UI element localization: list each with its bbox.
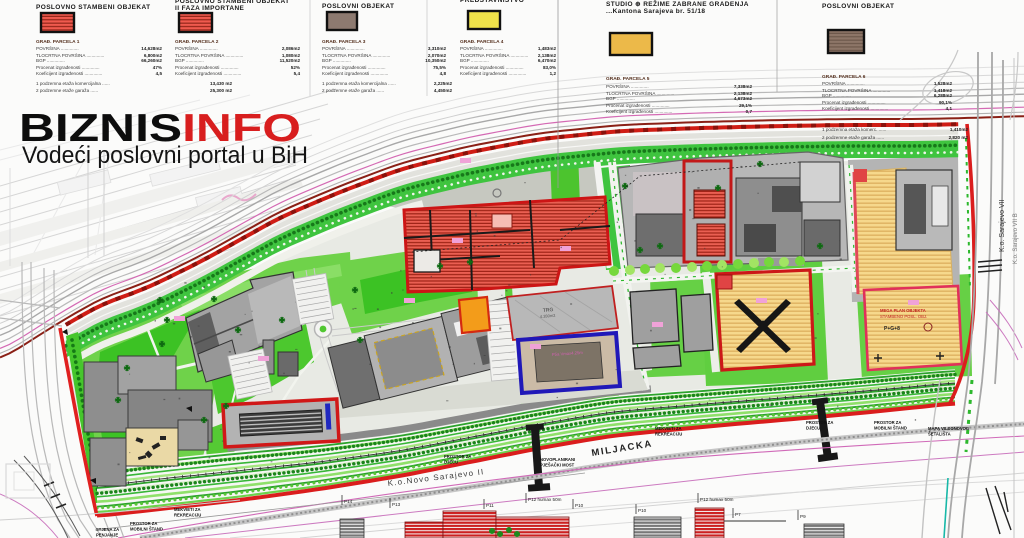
svg-text:GRAĐ. PARCELA 6: GRAĐ. PARCELA 6: [822, 74, 866, 80]
svg-text:P9: P9: [800, 514, 806, 519]
svg-text:Koeficijent izgrađenosti .....: Koeficijent izgrađenosti ..............: [822, 106, 888, 111]
svg-text:4,673m2: 4,673m2: [734, 96, 753, 101]
svg-text:POVRŠINA ..............: POVRŠINA ..............: [36, 45, 79, 51]
svg-text:P12 humax 50m: P12 humax 50m: [700, 497, 734, 502]
svg-text:Procenat izgrađenosti ........: Procenat izgrađenosti ..............: [460, 65, 524, 70]
svg-text:2 podzemne etaže garaža ......: 2 podzemne etaže garaža ......: [822, 135, 884, 140]
svg-text:2,086m2: 2,086m2: [282, 46, 301, 51]
svg-text:4,8: 4,8: [440, 71, 447, 76]
svg-text:25,300 m2: 25,300 m2: [210, 88, 232, 93]
svg-text:Koeficijent izgrađenosti .....: Koeficijent izgrađenosti ..............: [322, 71, 388, 76]
svg-text:POVRŠINA ..............: POVRŠINA ..............: [822, 80, 865, 86]
svg-text:Procenat izgrađenosti ........: Procenat izgrađenosti ..............: [606, 103, 670, 108]
svg-text:1,2: 1,2: [550, 71, 557, 76]
svg-text:ŠETALIŠTA: ŠETALIŠTA: [928, 431, 951, 436]
svg-text:PJEŠAČKI MOST: PJEŠAČKI MOST: [540, 462, 575, 467]
svg-text:II FAZA IMPORTANE: II FAZA IMPORTANE: [175, 5, 245, 12]
svg-text:3,310m2: 3,310m2: [428, 46, 447, 51]
svg-text:2,820 m2: 2,820 m2: [949, 135, 969, 140]
svg-text:POSLOVNI OBJEKAT: POSLOVNI OBJEKAT: [322, 3, 394, 10]
svg-text:52%: 52%: [291, 65, 300, 70]
svg-text:BGP ..............: BGP ..............: [822, 93, 851, 98]
svg-text:13,430 m2: 13,430 m2: [210, 81, 232, 86]
svg-text:29,1%: 29,1%: [739, 103, 752, 108]
svg-text:75,5%: 75,5%: [433, 65, 446, 70]
svg-text:MOBILNI ŠTAND: MOBILNI ŠTAND: [130, 526, 163, 531]
svg-text:Procenat izgrađenosti ........: Procenat izgrađenosti ..............: [322, 65, 386, 70]
svg-text:Koeficijent izgrađenosti .....: Koeficijent izgrađenosti ..............: [460, 71, 526, 76]
svg-text:REKREACIJU: REKREACIJU: [174, 512, 201, 517]
svg-text:0,7: 0,7: [746, 109, 753, 114]
svg-text:1,410m2: 1,410m2: [950, 127, 969, 132]
svg-text:P7: P7: [735, 512, 741, 517]
svg-text:Procenat izgrađenosti ........: Procenat izgrađenosti ..............: [36, 65, 100, 70]
svg-text:...Kantona Sarajeva br. 51/18: ...Kantona Sarajeva br. 51/18: [606, 8, 705, 15]
svg-text:GRAĐ. PARCELA 1: GRAĐ. PARCELA 1: [36, 39, 80, 45]
svg-text:Vodeći poslovni portal u BiH: Vodeći poslovni portal u BiH: [22, 142, 308, 169]
svg-text:Koeficijent izgrađenosti .....: Koeficijent izgrađenosti ..............: [36, 71, 102, 76]
svg-text:Koeficijent izgrađenosti .....: Koeficijent izgrađenosti ..............: [606, 109, 672, 114]
svg-text:10,350m2: 10,350m2: [425, 58, 446, 63]
svg-text:1,483m2: 1,483m2: [538, 46, 557, 51]
svg-text:Procenat izgrađenosti ........: Procenat izgrađenosti ..............: [175, 65, 239, 70]
svg-text:14,628m2: 14,628m2: [141, 46, 162, 51]
svg-text:GRAĐ. PARCELA 4: GRAĐ. PARCELA 4: [460, 39, 504, 45]
svg-text:47%: 47%: [153, 65, 162, 70]
svg-text:4,1: 4,1: [946, 106, 953, 111]
svg-text:STUDIO ⊕ REŽIME ZABRANE GRAD: STUDIO ⊕ REŽIME ZABRANE GRADENJA: [606, 0, 749, 8]
svg-text:NOVOPLANIRANI: NOVOPLANIRANI: [540, 457, 575, 462]
svg-text:P10: P10: [575, 503, 584, 508]
svg-text:Koeficijent izgrađenosti .....: Koeficijent izgrađenosti ..............: [175, 71, 241, 76]
svg-text:P12 humax 50m: P12 humax 50m: [528, 497, 562, 502]
svg-text:PENJANJE: PENJANJE: [96, 532, 118, 537]
svg-text:66,260m2: 66,260m2: [141, 58, 162, 63]
svg-text:REKREACIJU: REKREACIJU: [655, 431, 682, 436]
svg-text:Procenat izgrađenosti ........: Procenat izgrađenosti ..............: [822, 100, 886, 105]
svg-text:2 podzemne etaže garaža ......: 2 podzemne etaže garaža ......: [322, 88, 384, 93]
svg-text:DJECU: DJECU: [444, 459, 458, 464]
svg-text:BGP ..............: BGP ..............: [606, 96, 635, 101]
svg-text:11,520m2: 11,520m2: [280, 58, 301, 63]
svg-text:P14: P14: [344, 499, 353, 504]
svg-text:1 podzemna etaža komercijalna: 1 podzemna etaža komercijalna ......: [36, 81, 110, 86]
svg-text:K.o. Sarajevo VII B: K.o. Sarajevo VII B: [1013, 213, 1019, 264]
svg-text:K.o. Sarajevo VII: K.o. Sarajevo VII: [999, 199, 1006, 252]
svg-text:P13: P13: [392, 502, 401, 507]
svg-text:5,4: 5,4: [294, 71, 301, 76]
svg-text:STAMBENO POSL. OBJ.: STAMBENO POSL. OBJ.: [880, 314, 927, 319]
svg-text:PROSTOR ZA: PROSTOR ZA: [130, 521, 157, 526]
svg-text:1 podzemna etaža komerc. .....: 1 podzemna etaža komerc. ......: [822, 127, 886, 132]
svg-text:MAPA VILSONOVOG: MAPA VILSONOVOG: [928, 426, 969, 431]
svg-text:PREDSTAVNIŠTVO: PREDSTAVNIŠTVO: [460, 0, 524, 4]
svg-text:PROSTOR ZA: PROSTOR ZA: [874, 420, 901, 425]
svg-text:6,288m2: 6,288m2: [934, 93, 953, 98]
svg-text:1 podzemna etaža komercijalna: 1 podzemna etaža komercijalna ......: [322, 81, 396, 86]
svg-text:90,1%: 90,1%: [939, 100, 952, 105]
svg-text:MEKVIETI ZA: MEKVIETI ZA: [655, 426, 682, 431]
svg-text:POSLOVNO STAMBENI OBJEKAT: POSLOVNO STAMBENI OBJEKAT: [36, 4, 151, 11]
svg-text:BGP ..............: BGP ..............: [322, 58, 351, 63]
svg-text:GRAĐ. PARCELA 3: GRAĐ. PARCELA 3: [322, 39, 366, 45]
svg-text:POVRŠINA ..............: POVRŠINA ..............: [606, 83, 649, 89]
svg-text:P+G+8: P+G+8: [884, 326, 900, 332]
svg-text:2,225m2: 2,225m2: [434, 81, 453, 86]
svg-text:GRAĐ. PARCELA 5: GRAĐ. PARCELA 5: [606, 76, 650, 82]
svg-text:POSLOVNI OBJEKAT: POSLOVNI OBJEKAT: [822, 3, 894, 10]
svg-text:4,5: 4,5: [156, 71, 163, 76]
svg-text:GRAĐ. PARCELA 2: GRAĐ. PARCELA 2: [175, 39, 219, 45]
svg-text:BGP ..............: BGP ..............: [175, 58, 204, 63]
svg-text:MEGA PLAN OBJEKTA: MEGA PLAN OBJEKTA: [880, 308, 926, 313]
svg-text:DJECU: DJECU: [806, 425, 820, 430]
svg-text:83,0%: 83,0%: [543, 65, 556, 70]
svg-text:P10: P10: [638, 508, 647, 513]
svg-text:2 podzemne etaže garaža ......: 2 podzemne etaže garaža ......: [36, 88, 98, 93]
svg-text:6,470m2: 6,470m2: [538, 58, 557, 63]
svg-text:PROSTOR ZA: PROSTOR ZA: [806, 420, 833, 425]
svg-text:P11: P11: [486, 503, 494, 508]
svg-text:MOBILNI ŠTAND: MOBILNI ŠTAND: [874, 425, 907, 430]
svg-text:STJENA ZA: STJENA ZA: [96, 527, 119, 532]
svg-text:POVRŠINA ..............: POVRŠINA ..............: [460, 45, 503, 51]
svg-text:PROSTOR ZA: PROSTOR ZA: [444, 454, 471, 459]
svg-text:POVRŠINA ..............: POVRŠINA ..............: [175, 45, 218, 51]
svg-text:7,338m2: 7,338m2: [734, 84, 753, 89]
svg-text:POVRŠINA ..............: POVRŠINA ..............: [322, 45, 365, 51]
svg-text:4,450m2: 4,450m2: [434, 88, 453, 93]
svg-text:1,528m2: 1,528m2: [934, 81, 953, 86]
svg-text:MEKVIETI ZA: MEKVIETI ZA: [174, 507, 201, 512]
svg-text:BGP ..............: BGP ..............: [36, 58, 65, 63]
svg-text:BGP ..............: BGP ..............: [460, 58, 489, 63]
